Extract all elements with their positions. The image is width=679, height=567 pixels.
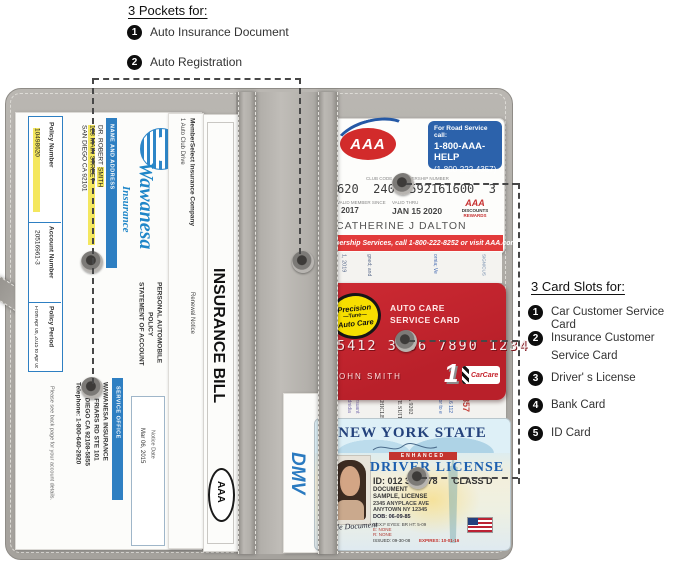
license-address-line2: ANYTOWN NY 12345	[373, 507, 427, 513]
policy-period-value: From Apr 08, 2015 to Apr 08, 2016	[33, 306, 38, 368]
pockets-item-2-number: 2	[127, 55, 142, 70]
license-issued: ISSUED: 09-30-08	[373, 538, 410, 543]
member-select-paper	[168, 113, 204, 549]
license-state: NEW YORK STATE	[315, 425, 510, 442]
card-slots-item-1: 1 Car Customer Service Card	[528, 305, 679, 332]
photo-face	[340, 466, 360, 496]
photo-shoulders	[336, 500, 364, 520]
slots-connector-stub1	[406, 183, 518, 185]
snap-spine	[292, 251, 314, 273]
aaa-banner: Membership Services, call 1-800-222-8252…	[333, 235, 503, 251]
us-flag	[467, 517, 493, 533]
license-enhanced-text: ENHANCED	[401, 453, 445, 459]
us-flag-canton	[468, 518, 478, 525]
license-name-line1: DOCUMENT	[373, 487, 408, 493]
pockets-connector-top	[93, 78, 301, 80]
policy-number-value: 10498620	[33, 128, 40, 212]
member-select-address: 1 Auto Club Drive	[179, 118, 185, 228]
card-slots-item-3-label: Driver' s License	[551, 371, 636, 385]
carcare-badge-number: 1	[444, 358, 458, 389]
road-service-line1: For Road Service call:	[434, 125, 502, 139]
policy-period-label: Policy Period	[47, 306, 54, 366]
service-office-line1: WAWANESA INSURANCE	[101, 382, 108, 540]
name-address-bar: NAME AND ADDRESS	[106, 118, 117, 268]
card-slots-item-5-label: ID Card	[551, 426, 591, 440]
road-service-line3: (1-800-222-4357)	[434, 165, 502, 174]
pockets-item-2: 2 Auto Registration	[127, 55, 242, 70]
wawanesa-logo-subtext: Insurance	[120, 186, 131, 278]
mid-frag-1: 1, 2019	[340, 254, 346, 281]
card-slots-item-5-number: 5	[528, 426, 543, 441]
auto-care-title-line2: SERVICE CARD	[390, 315, 460, 325]
card-slots-item-5: 5 ID Card	[528, 426, 591, 441]
doc-title-line1: PERSONAL AUTOMOBILE	[155, 282, 162, 390]
pockets-item-1-number: 1	[127, 25, 142, 40]
card-slots-item-3-number: 3	[528, 371, 543, 386]
service-office-line4: Telephone: 1-800-640-2920	[74, 382, 81, 540]
license-expires: EXPIRES: 10-01-16	[419, 538, 459, 543]
carcare-checker	[462, 366, 469, 384]
pockets-connector-left	[92, 78, 94, 384]
card-slots-annotation-title: 3 Card Slots for:	[531, 279, 625, 294]
card-slots-item-1-number: 1	[528, 305, 543, 320]
aaa-rewards-logo: AAA	[452, 198, 498, 208]
card-slots-item-4-label: Bank Card	[551, 398, 605, 412]
license-r-line: R: NONE	[373, 532, 392, 537]
auto-care-title-line1: AUTO CARE	[390, 303, 460, 313]
slots-connector-vertical	[518, 183, 520, 484]
slots-connector-stub3	[421, 477, 518, 479]
carcare-badge-text: CarCare	[471, 372, 498, 379]
account-number-value: 20516961-3	[33, 230, 40, 296]
pockets-connector-right	[299, 78, 301, 254]
member-since: 2017	[341, 206, 359, 215]
club-code-label: CLUB CODE	[366, 176, 392, 181]
notice-date-label: Notice Date	[149, 430, 155, 500]
card-slots-item-3: 3 Driver' s License	[528, 371, 636, 386]
card-slots-item-2-label: Insurance Customer	[551, 332, 655, 345]
aaa-logo: AAA	[340, 128, 396, 160]
service-office-line2: 9050 FRIARS RD STE 101	[92, 382, 99, 540]
mid-frag-3: ornia; Ve	[432, 254, 437, 281]
doc-title-line2: POLICY	[146, 312, 153, 362]
registration-paper-mid	[334, 252, 502, 283]
auto-care-holder: JOHN SMITH	[333, 372, 402, 381]
service-office-bar: SERVICE OFFICE	[112, 378, 123, 500]
notice-date-box	[131, 396, 165, 546]
dmv-logo: DMV	[288, 452, 307, 532]
road-service-line2: 1-800-AAA-HELP	[434, 141, 502, 163]
member-since-label: VALID MEMBER SINCE	[337, 200, 386, 205]
aaa-holder-name: CATHERINE J DALTON	[336, 220, 467, 232]
name-address-label: NAME AND ADDRESS	[108, 124, 114, 190]
service-office-line3: SAN DIEGO CA 92108-5855	[83, 382, 90, 540]
aaa-bill-logo: AAA	[208, 468, 235, 522]
card-slots-item-1-label: Car Customer Service Card	[551, 305, 679, 332]
spine-right-strap	[318, 92, 338, 554]
addressee-city: SAN DIEGO CA 92101	[80, 125, 87, 255]
renewal-notice: Renewal Notice	[189, 292, 195, 364]
road-service-box: For Road Service call: 1-800-AAA-HELP (1…	[428, 121, 502, 169]
pockets-item-1-label: Auto Insurance Document	[150, 25, 289, 40]
license-name-line2: SAMPLE, LICENSE	[373, 494, 427, 500]
mid-frag-2: gned; and	[366, 254, 371, 281]
left-divider-strap	[238, 92, 256, 554]
notice-date-value: Mar 06, 2015	[139, 428, 145, 504]
pockets-item-2-label: Auto Registration	[150, 55, 242, 70]
license-dob: DOB: 06-09-85	[373, 514, 411, 520]
policy-number-label: Policy Number	[47, 122, 54, 218]
card-slots-item-2-label2: Service Card	[551, 350, 655, 363]
addressee-name: DR. ROBERT SMITH	[96, 125, 103, 263]
card-slots-item-4: 4 Bank Card	[528, 398, 605, 413]
mid-frag-4: SIGN/CUS	[481, 254, 486, 281]
card-slots-item-2-number: 2	[528, 331, 543, 346]
aaa-banner-text: Membership Services, call 1-800-222-8252…	[319, 240, 516, 247]
aaa-rewards-mark: AAA DISCOUNTS REWARDS	[452, 198, 498, 218]
service-office-label: SERVICE OFFICE	[114, 386, 120, 439]
valid-thru-label: VALID THRU	[392, 200, 418, 205]
license-enhanced-bar: ENHANCED	[389, 452, 457, 460]
product-infographic: Policy Number 10498620 Account Number 20…	[0, 0, 679, 567]
card-slots-item-2: 2 Insurance Customer Service Card	[528, 331, 655, 363]
card-slots-item-4-number: 4	[528, 398, 543, 413]
aaa-logo-text: AAA	[350, 136, 386, 153]
doc-title-line3: STATEMENT OF ACCOUNT	[137, 282, 144, 390]
auto-care-title: AUTO CARE SERVICE CARD	[390, 303, 460, 325]
aaa-rewards-line2: REWARDS	[452, 213, 498, 218]
license-title: DRIVER LICENSE	[367, 460, 507, 476]
slots-connector-stub2	[409, 340, 518, 342]
account-number-label: Account Number	[47, 226, 54, 298]
pockets-annotation-title: 3 Pockets for:	[128, 3, 207, 18]
valid-thru: JAN 15 2020	[392, 206, 442, 216]
member-select-company: MemberSelect Insurance Company	[188, 118, 195, 296]
aaa-bill-logo-text: AAA	[215, 481, 225, 503]
carcare-badge: CarCare	[462, 366, 500, 384]
statement-footer: Please see back page for your account de…	[48, 386, 54, 546]
insurance-bill-title: INSURANCE BILL	[210, 268, 226, 458]
pockets-item-1: 1 Auto Insurance Document	[127, 25, 289, 40]
wawanesa-logo-text: Wawanesa	[136, 162, 156, 280]
